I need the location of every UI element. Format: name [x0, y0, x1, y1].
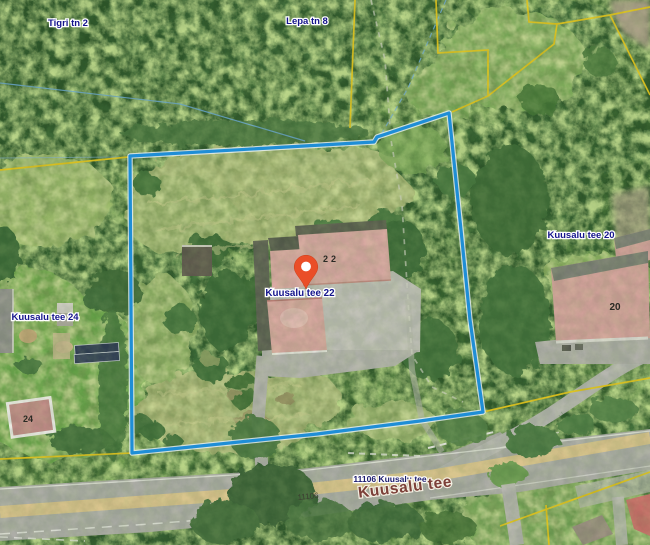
svg-text:Kuusalu tee 22: Kuusalu tee 22 — [265, 288, 335, 299]
svg-text:22: 22 — [323, 254, 339, 264]
svg-text:20: 20 — [609, 302, 621, 313]
svg-text:24: 24 — [23, 414, 33, 424]
svg-text:Tigri tn 2: Tigri tn 2 — [48, 18, 88, 29]
svg-text:Lepa tn 8: Lepa tn 8 — [286, 16, 328, 27]
svg-text:Kuusalu tee 20: Kuusalu tee 20 — [547, 230, 614, 241]
svg-text:Kuusalu tee 24: Kuusalu tee 24 — [11, 312, 79, 323]
